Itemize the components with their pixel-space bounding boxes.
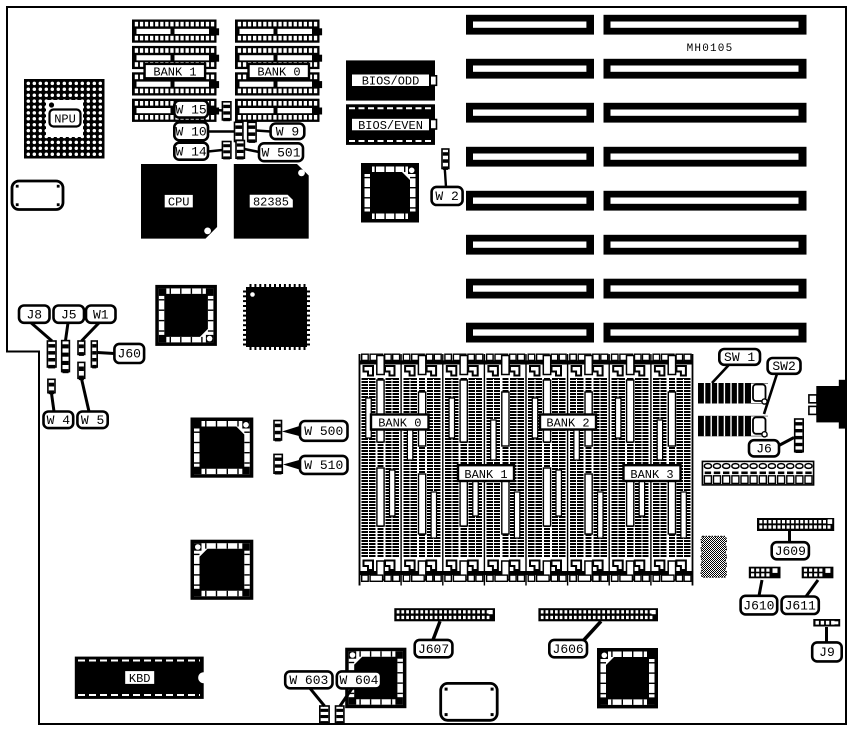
svg-text:BANK 1: BANK 1 <box>464 468 507 482</box>
svg-text:NPU: NPU <box>54 113 76 127</box>
svg-text:SW2: SW2 <box>772 359 795 374</box>
svg-text:W 510: W 510 <box>304 458 343 473</box>
svg-text:BANK 3: BANK 3 <box>630 468 673 482</box>
svg-text:W 10: W 10 <box>176 125 207 140</box>
svg-text:J9: J9 <box>819 645 835 660</box>
svg-text:MH0105: MH0105 <box>687 43 734 55</box>
svg-text:SW 1: SW 1 <box>724 350 755 365</box>
svg-text:BANK 0: BANK 0 <box>378 417 421 431</box>
svg-text:KBD: KBD <box>129 672 151 686</box>
svg-text:W1: W1 <box>93 307 109 322</box>
svg-text:J611: J611 <box>785 598 816 613</box>
svg-text:J606: J606 <box>553 642 584 657</box>
svg-text:J607: J607 <box>418 642 449 657</box>
svg-text:J609: J609 <box>775 544 806 559</box>
svg-text:BANK 1: BANK 1 <box>153 66 196 80</box>
svg-text:J610: J610 <box>743 598 774 613</box>
svg-text:W 2: W 2 <box>435 189 458 204</box>
svg-text:W 604: W 604 <box>339 673 378 688</box>
svg-text:J8: J8 <box>26 307 42 322</box>
svg-text:W 500: W 500 <box>304 424 343 439</box>
svg-text:BIOS/ODD: BIOS/ODD <box>362 75 420 89</box>
svg-text:W 603: W 603 <box>289 673 328 688</box>
svg-text:J5: J5 <box>61 307 77 322</box>
svg-text:W 501: W 501 <box>261 145 300 160</box>
svg-text:BANK 0: BANK 0 <box>257 66 300 80</box>
svg-text:J60: J60 <box>118 347 141 362</box>
svg-text:82385: 82385 <box>253 195 289 209</box>
svg-text:W 15: W 15 <box>176 102 207 117</box>
svg-text:W 9: W 9 <box>276 125 299 140</box>
svg-text:BANK 2: BANK 2 <box>546 417 589 431</box>
svg-text:J6: J6 <box>756 442 772 457</box>
svg-text:W 5: W 5 <box>81 413 104 428</box>
svg-text:W 4: W 4 <box>47 413 71 428</box>
svg-text:CPU: CPU <box>168 196 190 210</box>
svg-text:BIOS/EVEN: BIOS/EVEN <box>358 119 423 133</box>
svg-text:W 14: W 14 <box>176 144 207 159</box>
